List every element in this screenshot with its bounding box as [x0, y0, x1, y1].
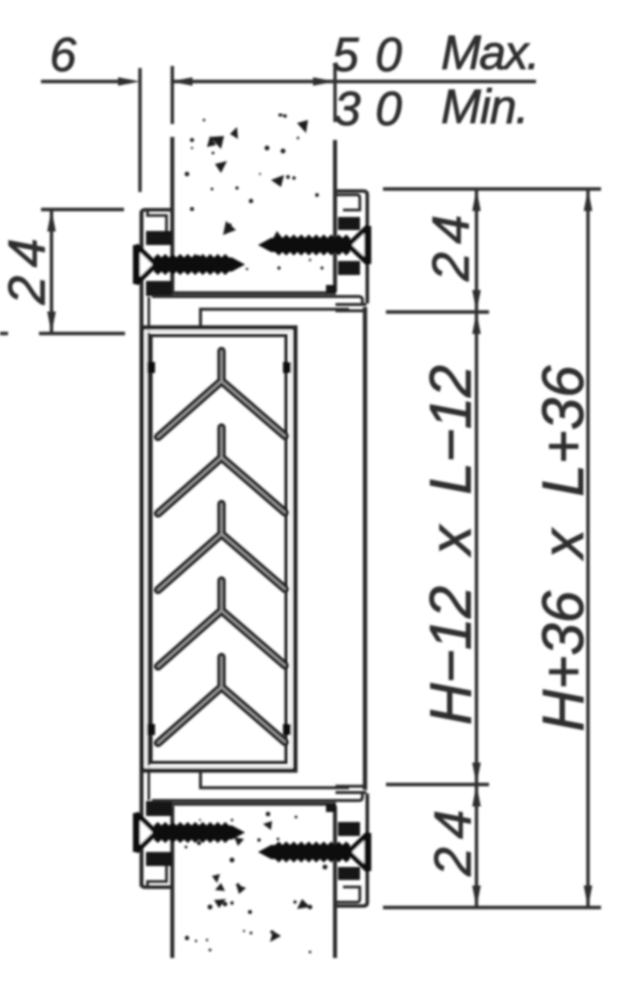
svg-text:Max.: Max.	[441, 27, 540, 80]
svg-text:24: 24	[423, 215, 481, 282]
svg-text:50: 50	[332, 29, 402, 82]
svg-text:H−12 x L−12: H−12 x L−12	[419, 365, 484, 725]
svg-text:24: 24	[0, 239, 57, 306]
svg-text:6: 6	[50, 29, 77, 82]
svg-text:24: 24	[425, 810, 483, 877]
svg-text:Min.: Min.	[441, 81, 529, 134]
svg-text:H+36 x L+36: H+36 x L+36	[531, 365, 596, 732]
svg-text:30: 30	[334, 83, 402, 136]
